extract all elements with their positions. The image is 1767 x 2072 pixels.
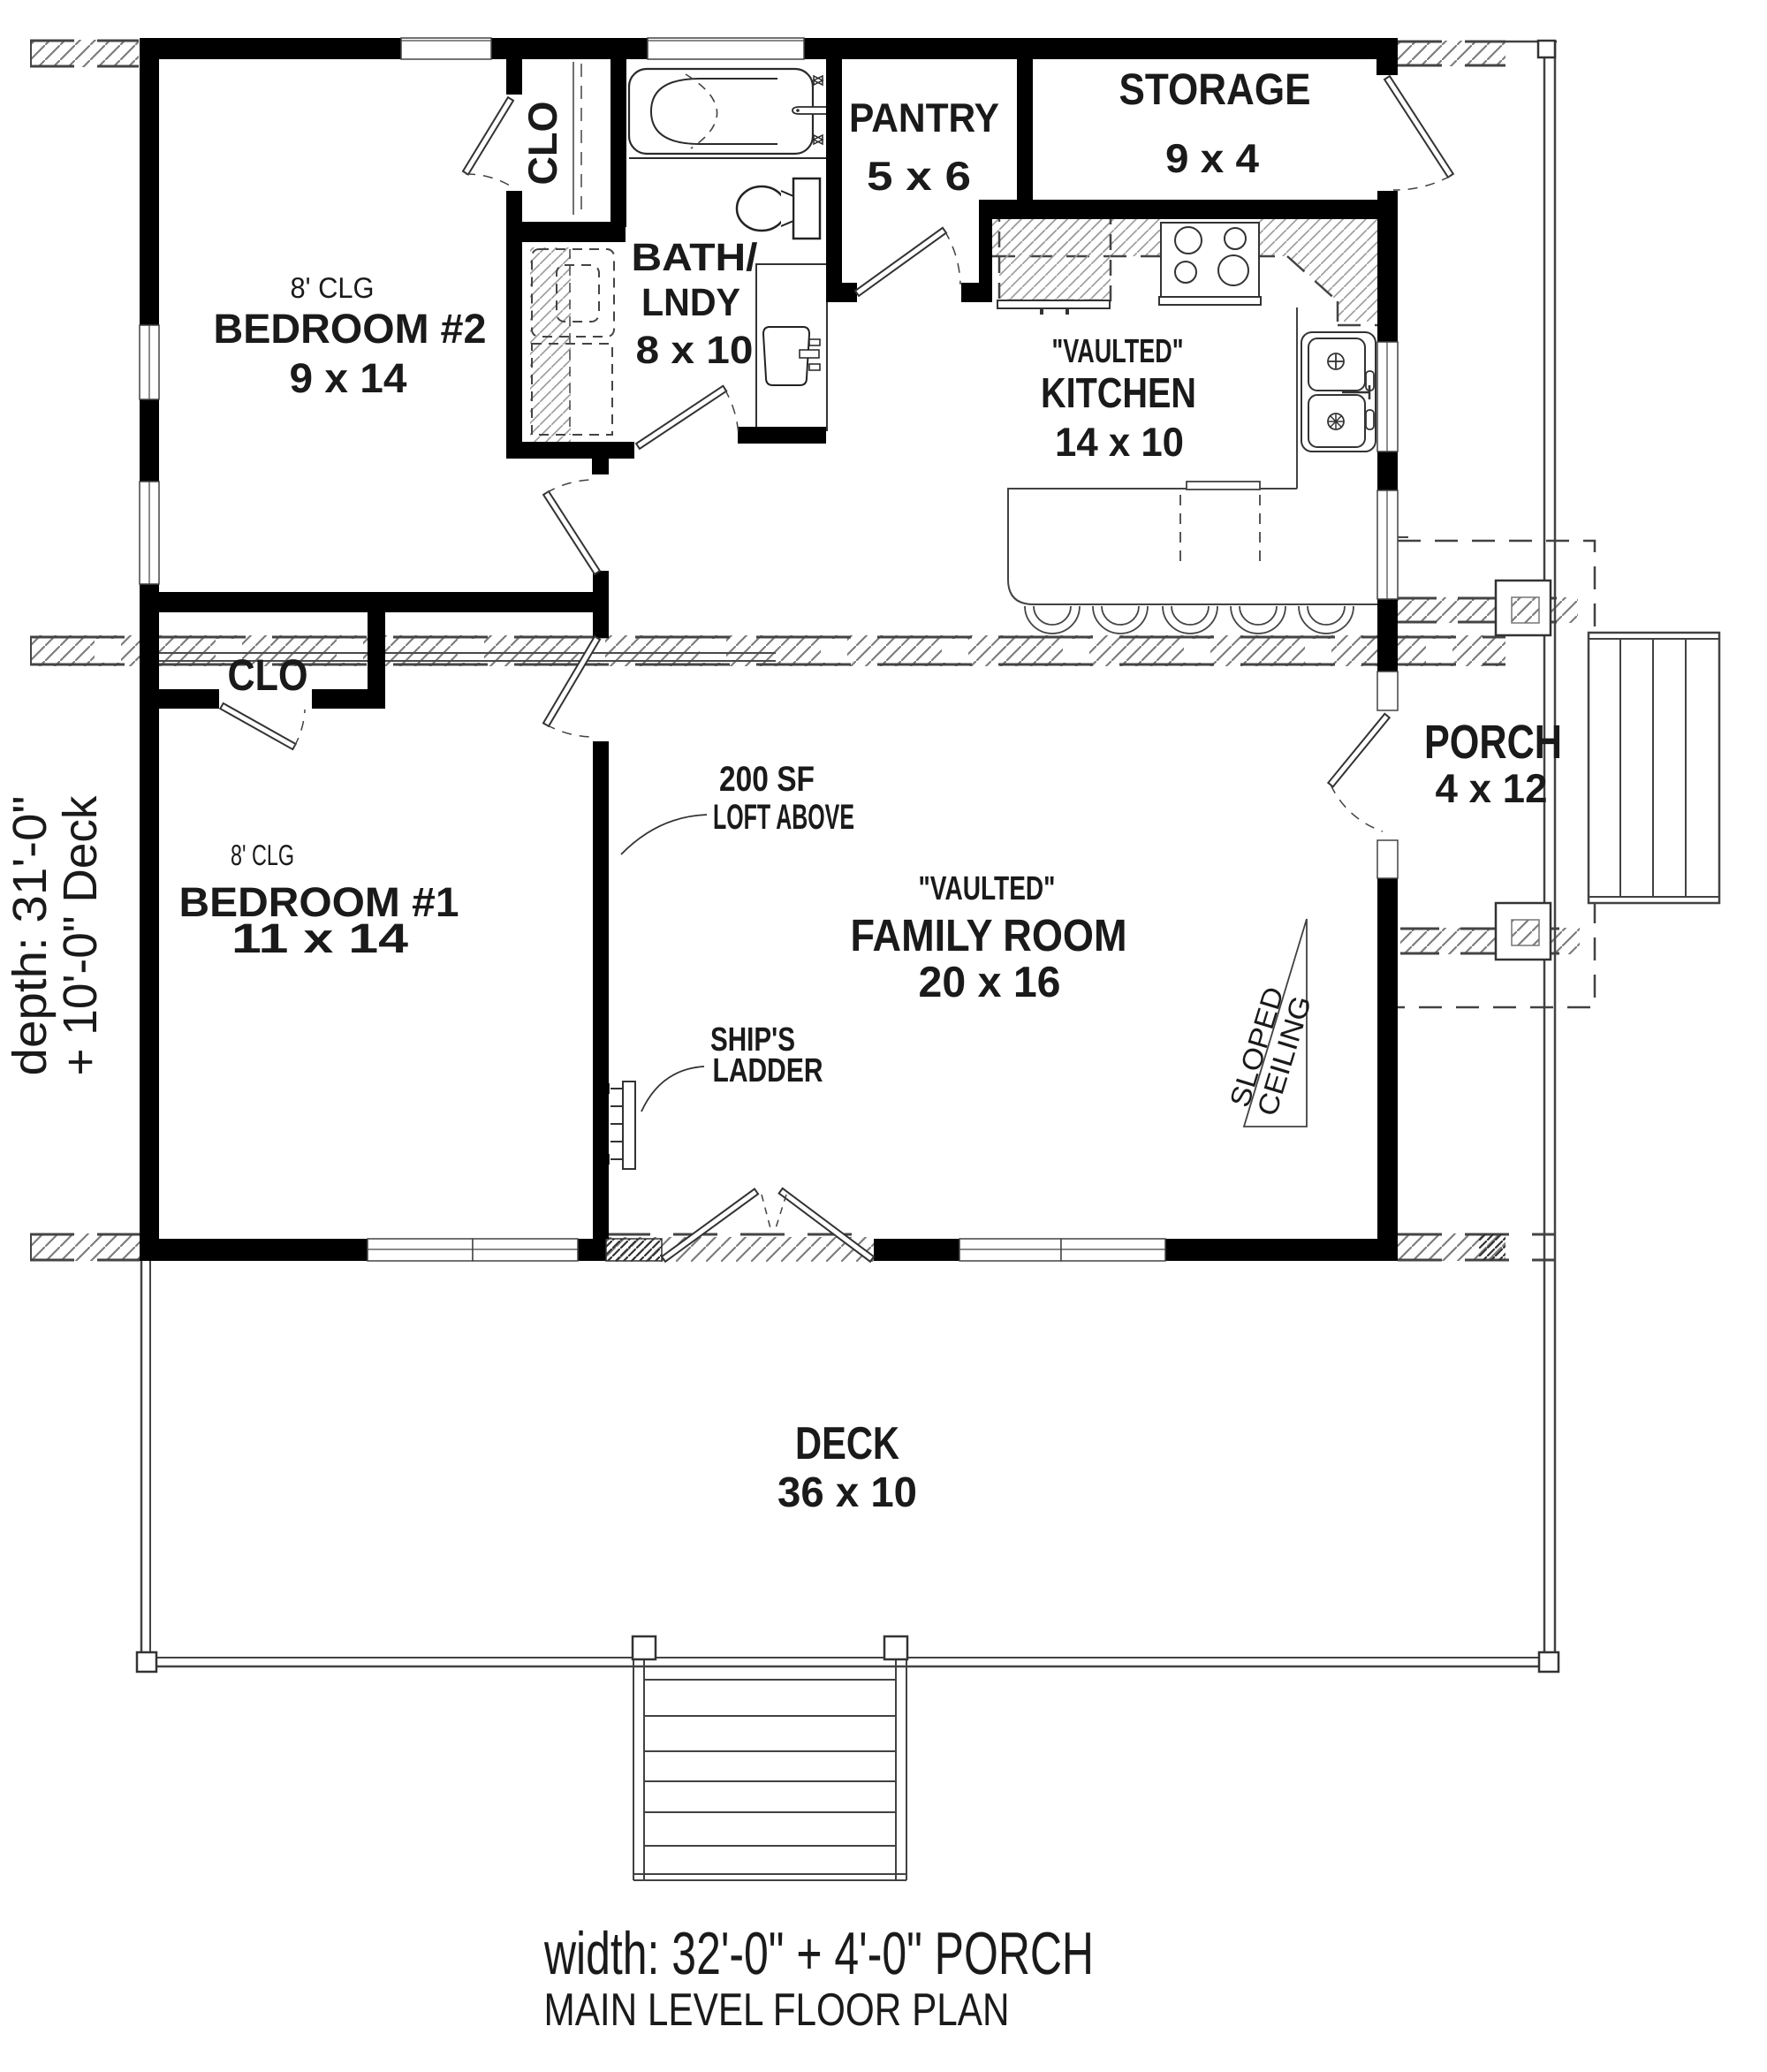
svg-text:9 x 14: 9 x 14 — [290, 354, 407, 401]
svg-text:width: 32'-0" + 4'-0" PORCH: width: 32'-0" + 4'-0" PORCH — [543, 1920, 1094, 1987]
svg-text:+ 10'-0" Deck: + 10'-0" Deck — [54, 795, 107, 1076]
svg-text:9 x 4: 9 x 4 — [1165, 135, 1259, 181]
svg-text:8' CLG: 8' CLG — [291, 271, 375, 304]
svg-text:"VAULTED": "VAULTED" — [1052, 333, 1184, 370]
svg-text:FAMILY ROOM: FAMILY ROOM — [851, 910, 1127, 960]
svg-text:BEDROOM #2: BEDROOM #2 — [214, 305, 487, 352]
svg-text:LOFT ABOVE: LOFT ABOVE — [713, 798, 854, 837]
svg-text:14 x 10: 14 x 10 — [1055, 419, 1184, 465]
svg-text:11 x 14: 11 x 14 — [231, 915, 408, 961]
svg-text:8' CLG: 8' CLG — [231, 839, 294, 871]
svg-text:PORCH: PORCH — [1424, 716, 1562, 769]
svg-text:LNDY: LNDY — [641, 281, 740, 324]
svg-text:depth: 31'-0": depth: 31'-0" — [4, 796, 57, 1076]
svg-text:36 x 10: 36 x 10 — [777, 1469, 917, 1516]
svg-text:DECK: DECK — [795, 1418, 899, 1469]
svg-text:KITCHEN: KITCHEN — [1041, 370, 1196, 417]
svg-text:20 x 16: 20 x 16 — [919, 959, 1061, 1006]
svg-text:5 x 6: 5 x 6 — [867, 153, 971, 199]
svg-text:CLO: CLO — [228, 650, 308, 700]
svg-text:PANTRY: PANTRY — [849, 95, 999, 140]
svg-text:BATH/: BATH/ — [632, 236, 758, 279]
svg-text:8 x 10: 8 x 10 — [636, 329, 754, 372]
svg-text:CLO: CLO — [519, 102, 565, 186]
svg-text:LADDER: LADDER — [713, 1052, 823, 1089]
svg-text:"VAULTED": "VAULTED" — [919, 870, 1056, 907]
svg-text:4 x 12: 4 x 12 — [1436, 765, 1548, 811]
svg-text:200 SF: 200 SF — [719, 760, 815, 799]
svg-text:STORAGE: STORAGE — [1119, 65, 1311, 114]
svg-text:MAIN LEVEL FLOOR PLAN: MAIN LEVEL FLOOR PLAN — [544, 1985, 1010, 2036]
